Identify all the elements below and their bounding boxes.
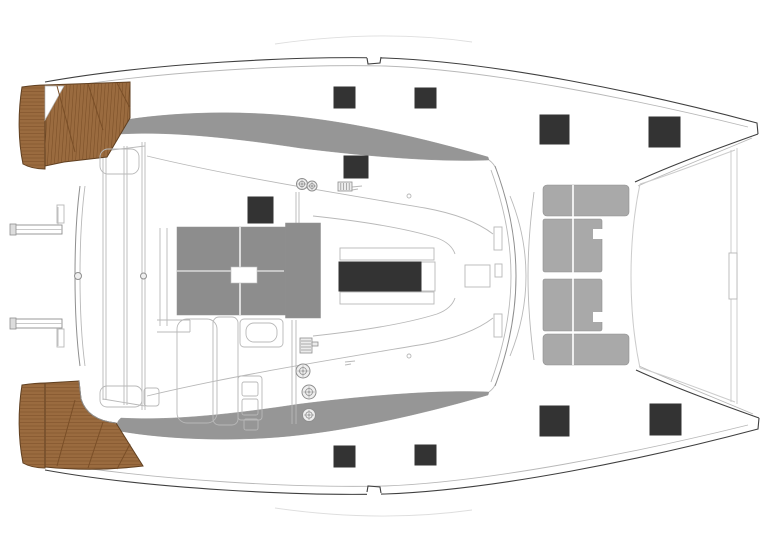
winch-helm-3 xyxy=(303,409,316,422)
windscreen xyxy=(491,166,534,386)
clutch-arm xyxy=(312,342,318,346)
seating-notch xyxy=(593,229,603,239)
hatch-foredeck-stbd-fwd xyxy=(650,404,681,435)
hatch-coachroof-port-fwd xyxy=(415,88,436,108)
winch-helm-2 xyxy=(302,385,316,399)
sidedeck-band-port xyxy=(117,113,489,161)
winch-coachroof-2 xyxy=(307,181,317,191)
hatch-foredeck-port-aft xyxy=(540,115,569,144)
davit-arm-upper xyxy=(10,207,62,235)
davit-end xyxy=(10,318,16,329)
mast-step xyxy=(465,265,490,287)
cleat-notch-port xyxy=(367,55,381,63)
davit-end xyxy=(10,224,16,235)
trampoline-fitting-layer xyxy=(729,253,737,299)
helm-seats-layer xyxy=(100,149,159,407)
saloon-skylight xyxy=(339,262,421,291)
winch-coachroof-1 xyxy=(297,179,308,190)
davits-layer xyxy=(10,207,62,346)
winch-helm-1 xyxy=(296,364,310,378)
hull-flare-line-port xyxy=(275,36,472,44)
hatch-foredeck-stbd-aft xyxy=(540,406,569,436)
bowsprit-fitting xyxy=(729,253,737,299)
clutch-bank-helm xyxy=(300,338,318,353)
aft-cockpit xyxy=(57,142,190,410)
hatch-galley xyxy=(248,197,273,223)
trampoline xyxy=(631,148,737,404)
hatch-coachroof-front xyxy=(344,156,368,178)
hull-flare-line-stbd xyxy=(275,508,472,516)
hatch-foredeck-port-fwd xyxy=(649,117,680,147)
fwd-seat-arm-fwd xyxy=(543,334,629,365)
mast-step-layer xyxy=(465,265,490,287)
table-sink xyxy=(231,267,257,283)
hatch-coachroof-stbd-aft xyxy=(334,446,355,467)
seating-notch xyxy=(593,312,603,322)
fwd-seat-arm-aft xyxy=(543,185,629,216)
saloon-skylight-layer xyxy=(339,262,421,291)
cleat-notch-stbd xyxy=(367,488,381,496)
deck-plan-canvas xyxy=(0,0,770,550)
helm-seat-stbd-step xyxy=(144,388,159,406)
forward-seating-layer xyxy=(543,185,629,365)
cockpit-table-layer xyxy=(177,223,321,318)
hatch-coachroof-stbd-fwd xyxy=(415,445,436,465)
swim-platform-port xyxy=(16,80,130,170)
clutch-bank-coachroof xyxy=(338,182,352,191)
davit-arm-lower xyxy=(10,318,62,346)
hatch-coachroof-port-aft xyxy=(334,87,355,108)
deck-plan xyxy=(0,0,770,550)
cockpit-table-right xyxy=(286,223,321,318)
